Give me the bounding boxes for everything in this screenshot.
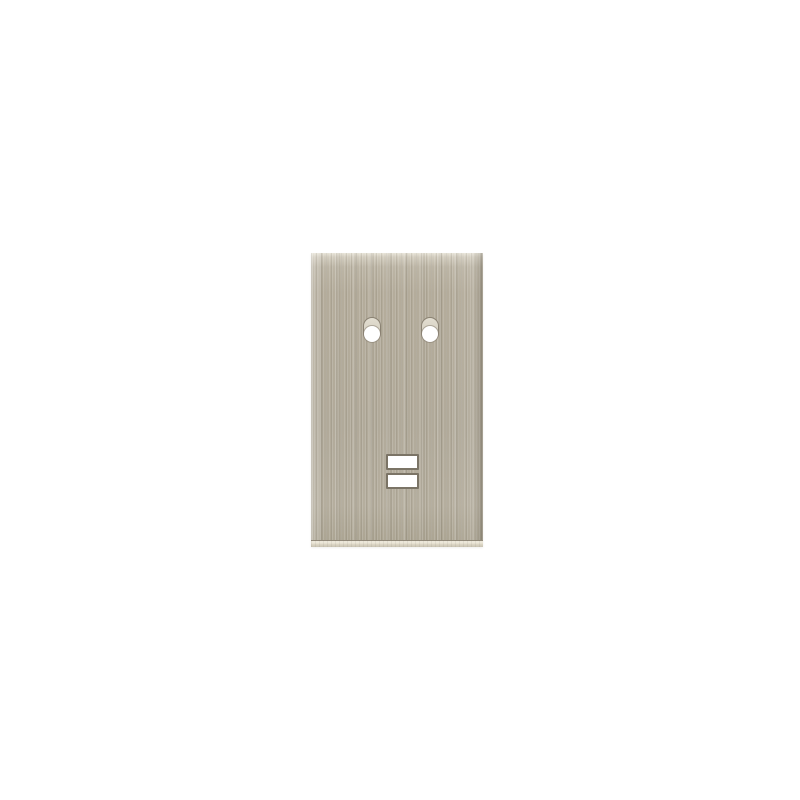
screw-hole-opening <box>422 326 438 342</box>
slot-group <box>386 454 419 489</box>
rectangular-slot-top <box>386 454 419 470</box>
product-photo <box>0 0 800 800</box>
plate-bottom-bevel <box>311 540 483 547</box>
mounting-hole-right <box>421 317 439 342</box>
rectangular-slot-bottom <box>386 473 419 489</box>
screw-hole-opening <box>364 326 380 342</box>
brushed-metal-face <box>311 253 483 540</box>
wall-plate <box>311 253 483 547</box>
mounting-hole-left <box>363 317 381 342</box>
